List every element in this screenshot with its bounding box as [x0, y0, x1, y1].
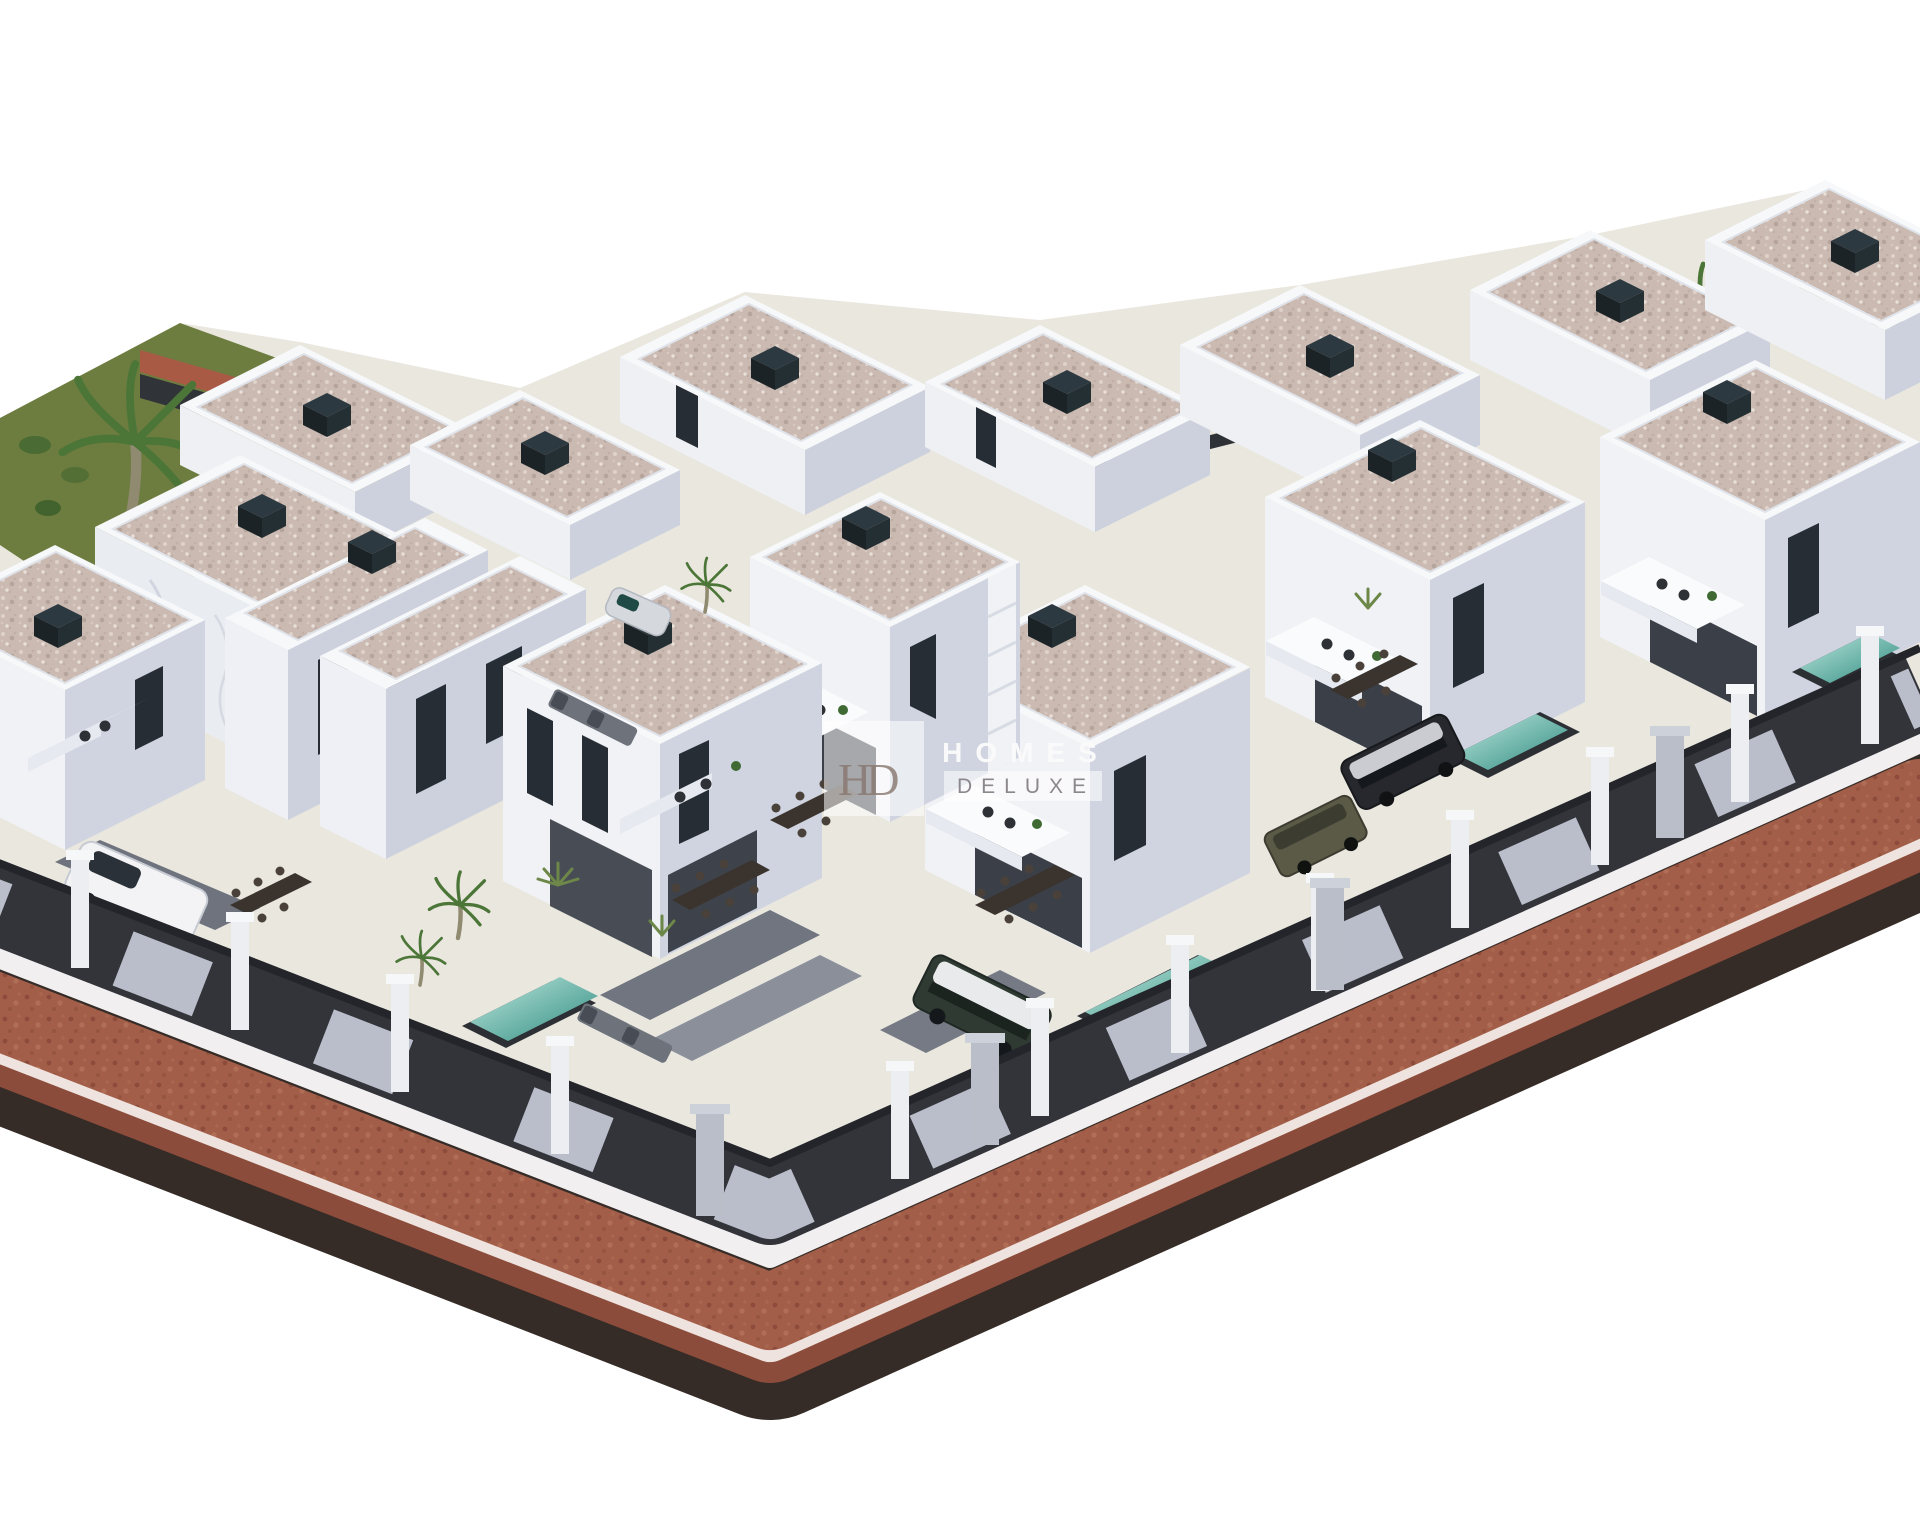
window [135, 666, 163, 750]
render-canvas: HD HOMES DELUXE [0, 0, 1920, 1538]
window [1788, 523, 1819, 628]
window [1453, 583, 1484, 688]
window [676, 385, 698, 448]
watermark-monogram: HD [838, 754, 898, 805]
window [582, 735, 608, 833]
window [1114, 755, 1146, 861]
window [910, 634, 936, 719]
watermark-brand: HOMES [942, 737, 1110, 768]
window [527, 708, 553, 806]
development-render: HD HOMES DELUXE [0, 0, 1920, 1538]
watermark-sub: DELUXE [957, 775, 1095, 798]
window [976, 407, 996, 468]
window [416, 684, 446, 794]
